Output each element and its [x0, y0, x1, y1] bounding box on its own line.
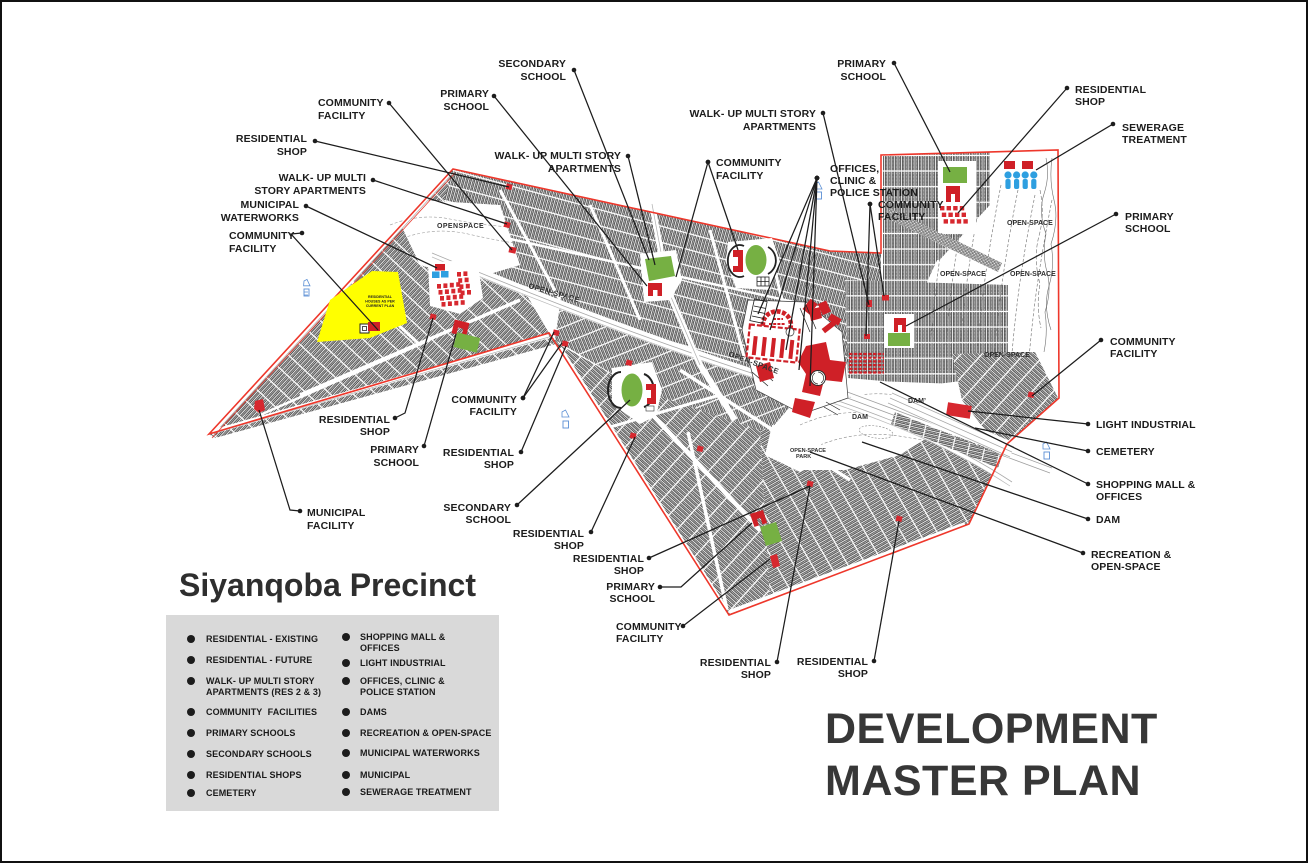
svg-text:SCHOOL: SCHOOL [373, 457, 419, 469]
svg-text:RESIDENTIAL: RESIDENTIAL [236, 133, 308, 145]
svg-text:SHOP: SHOP [741, 669, 771, 681]
svg-text:APARTMENTS: APARTMENTS [548, 163, 621, 175]
svg-text:SHOP: SHOP [277, 146, 307, 158]
svg-text:COMMUNITY: COMMUNITY [451, 394, 517, 406]
svg-text:OFFICES,: OFFICES, [830, 163, 879, 175]
svg-text:WATERWORKS: WATERWORKS [221, 212, 299, 224]
svg-text:OPEN-SPACE: OPEN-SPACE [1007, 220, 1053, 227]
svg-text:DAM: DAM [852, 414, 868, 421]
svg-text:RESIDENTIAL: RESIDENTIAL [573, 553, 645, 565]
svg-text:MUNICIPAL: MUNICIPAL [241, 199, 300, 211]
svg-text:RESIDENTIAL: RESIDENTIAL [368, 295, 393, 299]
svg-text:FACILITY: FACILITY [1110, 348, 1157, 360]
svg-text:PRIMARY: PRIMARY [440, 88, 489, 100]
svg-text:RESIDENTIAL: RESIDENTIAL [443, 447, 515, 459]
svg-text:OPEN-SPACE: OPEN-SPACE [1091, 561, 1161, 573]
svg-text:SECONDARY: SECONDARY [443, 502, 511, 514]
svg-text:SCHOOL: SCHOOL [1125, 223, 1171, 235]
svg-text:SHOPPING MALL &: SHOPPING MALL & [1096, 479, 1196, 491]
svg-text:RESIDENTIAL: RESIDENTIAL [700, 657, 772, 669]
svg-text:CLINIC &: CLINIC & [830, 175, 877, 187]
svg-text:HOUSES AS PER: HOUSES AS PER [365, 300, 395, 304]
svg-text:FACILITY: FACILITY [716, 170, 763, 182]
svg-text:CEMETERY: CEMETERY [1096, 446, 1155, 458]
svg-text:SEWERAGE: SEWERAGE [1122, 122, 1184, 134]
svg-text:SECONDARY: SECONDARY [498, 58, 566, 70]
svg-text:DAM: DAM [1096, 514, 1120, 526]
svg-text:LIGHT INDUSTRIAL: LIGHT INDUSTRIAL [1096, 419, 1196, 431]
svg-text:RESIDENTIAL: RESIDENTIAL [797, 656, 869, 668]
svg-text:SCHOOL: SCHOOL [443, 101, 489, 113]
svg-text:RESIDENTIAL: RESIDENTIAL [319, 414, 391, 426]
svg-text:DAM’: DAM’ [908, 398, 926, 405]
svg-text:SHOP: SHOP [484, 459, 514, 471]
svg-text:OPEN-SPACE: OPEN-SPACE [1010, 271, 1056, 278]
svg-text:COMMUNITY: COMMUNITY [616, 621, 682, 633]
svg-text:RESIDENTIAL: RESIDENTIAL [1075, 84, 1147, 96]
svg-text:FACILITY: FACILITY [229, 243, 276, 255]
svg-text:FACILITY: FACILITY [878, 211, 925, 223]
svg-text:SCHOOL: SCHOOL [465, 514, 511, 526]
svg-text:SCHOOL: SCHOOL [609, 593, 655, 605]
svg-text:PRIMARY: PRIMARY [1125, 211, 1174, 223]
svg-text:SHOP: SHOP [554, 540, 584, 552]
svg-text:COMMUNITY: COMMUNITY [878, 199, 944, 211]
svg-text:OPEN-SPACE: OPEN-SPACE [984, 352, 1030, 359]
svg-text:FACILITY: FACILITY [307, 520, 354, 532]
svg-text:OPEN-SPACE: OPEN-SPACE [940, 271, 986, 278]
svg-text:COMMUNITY: COMMUNITY [229, 230, 295, 242]
svg-text:SCHOOL: SCHOOL [520, 71, 566, 83]
svg-text:SHOP: SHOP [1075, 96, 1105, 108]
svg-text:SCHOOL: SCHOOL [840, 71, 886, 83]
svg-text:COMMUNITY: COMMUNITY [1110, 336, 1176, 348]
svg-text:RESIDENTIAL: RESIDENTIAL [513, 528, 585, 540]
svg-text:PARK: PARK [796, 454, 811, 460]
svg-text:OPENSPACE: OPENSPACE [437, 223, 484, 230]
svg-text:MUNICIPAL: MUNICIPAL [307, 507, 366, 519]
svg-text:WALK- UP MULTI STORY: WALK- UP MULTI STORY [495, 150, 621, 162]
svg-text:POLICE STATION: POLICE STATION [830, 187, 918, 199]
svg-text:SHOP: SHOP [838, 668, 868, 680]
svg-text:RECREATION &: RECREATION & [1091, 549, 1172, 561]
svg-text:COMMUNITY: COMMUNITY [318, 97, 384, 109]
svg-text:CURRENT PLAN: CURRENT PLAN [366, 304, 395, 308]
svg-text:SHOP: SHOP [614, 565, 644, 577]
svg-text:STORY APARTMENTS: STORY APARTMENTS [254, 185, 366, 197]
svg-text:PRIMARY: PRIMARY [606, 581, 655, 593]
svg-text:TREATMENT: TREATMENT [1122, 134, 1187, 146]
svg-text:SHOP: SHOP [360, 426, 390, 438]
svg-text:FACILITY: FACILITY [616, 633, 663, 645]
svg-text:FACILITY: FACILITY [470, 406, 517, 418]
svg-text:WALK- UP MULTI STORY: WALK- UP MULTI STORY [690, 108, 816, 120]
svg-text:FACILITY: FACILITY [318, 110, 365, 122]
svg-text:PRIMARY: PRIMARY [370, 444, 419, 456]
svg-text:OFFICES: OFFICES [1096, 491, 1142, 503]
svg-text:WALK- UP MULTI: WALK- UP MULTI [279, 172, 366, 184]
svg-text:PRIMARY: PRIMARY [837, 58, 886, 70]
svg-text:APARTMENTS: APARTMENTS [743, 121, 816, 133]
svg-text:COMMUNITY: COMMUNITY [716, 157, 782, 169]
